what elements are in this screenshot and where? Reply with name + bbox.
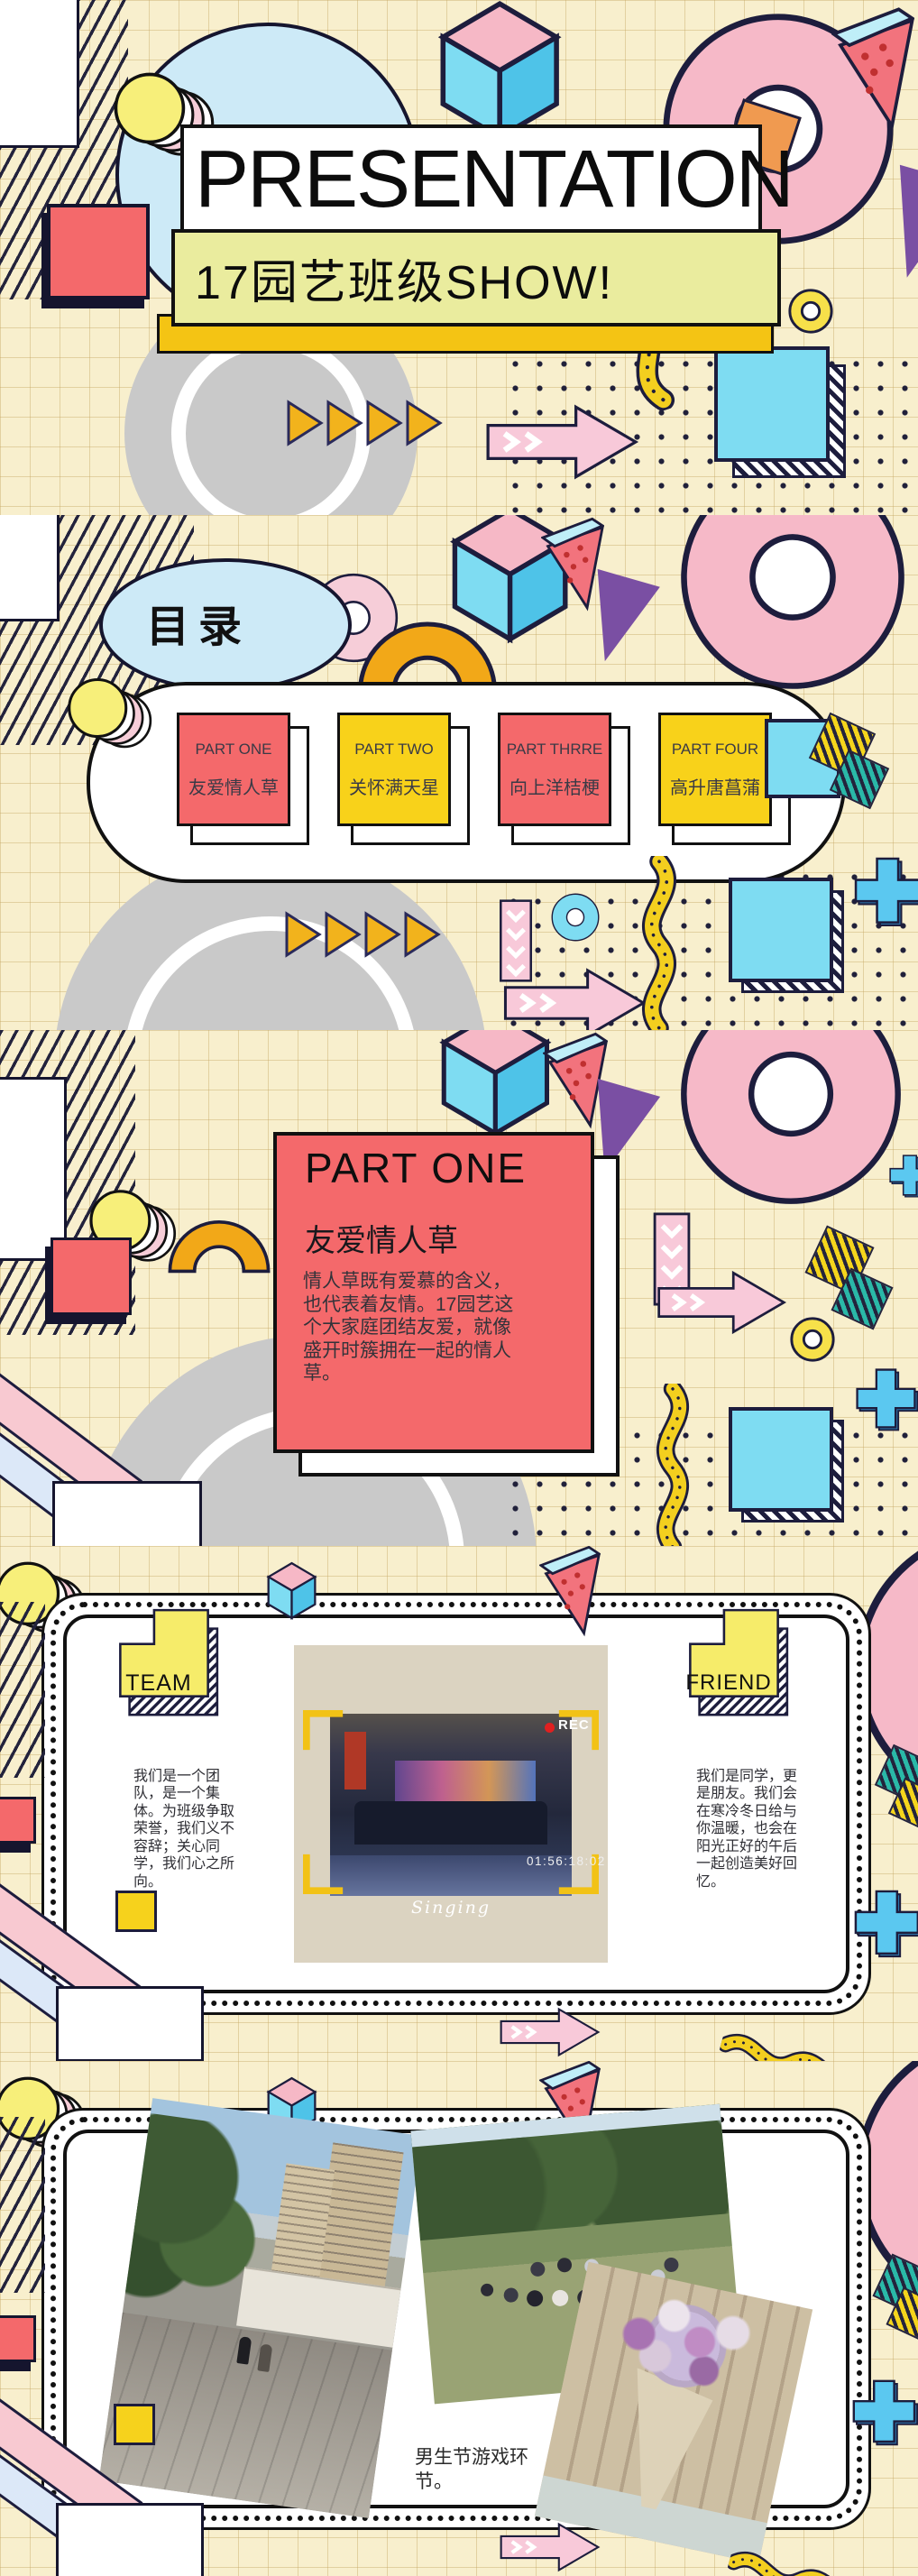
group-photo [330, 1714, 572, 1896]
triangle-arrow-icon [363, 910, 402, 959]
watermelon-shape [831, 0, 914, 135]
team-badge [106, 1604, 222, 1723]
slash-pattern [0, 2117, 45, 2293]
team-paragraph: 我们是一个团队，是一个集体。为班级争取荣誉，我们义不容辞；关心同学，我们心之所向… [133, 1768, 240, 1891]
small-ring-icon [788, 1315, 837, 1364]
triangle-arrow-icon [325, 399, 364, 447]
friend-badge-label: FRIEND [671, 1670, 786, 1696]
viewfinder-bracket-icon [303, 1851, 346, 1894]
small-ring-icon [786, 287, 835, 336]
stacked-circle-icon [61, 670, 156, 765]
cyan-square-shape [729, 878, 833, 982]
triangle-arrow-icon [404, 399, 444, 447]
toc-card-part-one: PART ONE 友爱情人草 [177, 713, 290, 826]
triangle-arrow-icon [285, 399, 325, 447]
plus-shape [851, 1887, 918, 1961]
toc-card-title: 关怀满天星 [349, 773, 439, 799]
plus-shape [853, 1366, 918, 1434]
pink-arrow-icon [498, 2001, 601, 2061]
toc-heading: 目录 [146, 591, 251, 654]
timecode-label: 01:56:18:02 [527, 1854, 606, 1868]
pink-arrow-icon [655, 1266, 788, 1339]
squiggle-shape [646, 1384, 700, 1545]
plus-shape [887, 1153, 918, 1200]
section-part-label: PART ONE [305, 1144, 527, 1192]
plus-shape [851, 854, 918, 930]
slide-cover: PRESENTATION 17园艺班级SHOW! [0, 0, 918, 515]
slide-team-friend: TEAM FRIEND REC 01:56:18:02 Singing 我们是一… [0, 1546, 918, 2061]
rec-dot-icon [545, 1723, 555, 1733]
triangle-arrow-icon [364, 399, 404, 447]
cover-subtitle: 17园艺班级SHOW! [195, 244, 613, 312]
white-corner-rect [56, 1986, 204, 2061]
toc-card-part-label: PART THRRE [507, 741, 602, 759]
rec-label: REC [558, 1717, 590, 1733]
toc-card-part-three: PART THRRE 向上洋桔梗 [498, 713, 611, 826]
cyan-donut-icon [550, 892, 601, 943]
cube-icon [256, 1555, 325, 1624]
photo-crowd-silhouette [354, 1801, 547, 1845]
pink-donut-shape [675, 515, 911, 695]
presentation-preview: PRESENTATION 17园艺班级SHOW! 目录 PART ONE 友爱情… [0, 0, 918, 2576]
slash-pattern [0, 1602, 45, 1778]
squiggle-shape [631, 856, 687, 1030]
toc-card-title: 向上洋桔梗 [509, 773, 600, 799]
pink-donut-shape [675, 1030, 907, 1210]
cover-title: PRESENTATION [195, 133, 793, 226]
photo-stage-backdrop [395, 1761, 535, 1804]
red-square-shape [0, 1797, 36, 1844]
white-corner-rect [56, 2503, 204, 2576]
pink-arrow-icon [498, 2516, 601, 2576]
triangle-arrow-icon [323, 910, 363, 959]
triangle-arrow-icon [283, 910, 323, 959]
watermelon-shape [539, 1546, 601, 1640]
gallery-caption: 男生节游戏环节。 [415, 2445, 536, 2494]
photo-caption: Singing [397, 1898, 505, 1918]
slide-photo-gallery: 男生节游戏环节。 [0, 2061, 918, 2576]
photo-campus-walk [99, 2098, 423, 2518]
cyan-square-shape [729, 1407, 833, 1512]
white-corner-rect [0, 1077, 67, 1261]
pink-arrow-icon [480, 400, 644, 483]
red-square-shape [47, 204, 150, 299]
squiggle-shape [714, 2016, 868, 2061]
friend-paragraph: 我们是同学，更是朋友。我们会在寒冷冬日给与你温暖，也会在阳光正好的午后一起创造美… [696, 1768, 806, 1891]
toc-card-part-label: PART FOUR [672, 741, 758, 759]
yellow-square-shape [114, 2404, 155, 2445]
slide-toc: 目录 PART ONE 友爱情人草 PART TWO 关怀满天星 [0, 515, 918, 1030]
viewfinder-bracket-icon [303, 1710, 346, 1753]
photo-people [480, 2283, 493, 2296]
white-corner-rect [52, 1481, 202, 1545]
squiggle-shape [722, 2534, 877, 2576]
red-square-shape [50, 1237, 132, 1315]
gold-arch-shape [162, 1214, 276, 1274]
friend-badge [676, 1604, 792, 1723]
section-body-text: 情人草既有爱慕的含义，也代表着友情。17园艺这个大家庭团结友爱，就像盛开时簇拥在… [303, 1270, 521, 1385]
cyan-square-shape [714, 346, 830, 462]
cover-title-box: PRESENTATION [180, 124, 762, 235]
yellow-square-shape [115, 1891, 157, 1932]
slide-part-one: PART ONE 友爱情人草 情人草既有爱慕的含义，也代表着友情。17园艺这个大… [0, 1030, 918, 1545]
photo-red-banner [344, 1732, 366, 1790]
triangle-arrow-icon [402, 910, 442, 959]
plus-shape [849, 2377, 918, 2449]
toc-card-part-label: PART ONE [195, 741, 271, 759]
section-title: 友爱情人草 [305, 1216, 458, 1260]
team-badge-label: TEAM [101, 1670, 216, 1697]
cover-subtitle-box: 17园艺班级SHOW! [171, 229, 781, 327]
white-corner-rect [0, 0, 79, 148]
toc-card-part-four: PART FOUR 高升唐菖蒲 [658, 713, 772, 826]
white-corner-rect [0, 515, 60, 621]
toc-card-title: 高升唐菖蒲 [670, 773, 760, 799]
red-square-shape [0, 2315, 36, 2362]
toc-card-title: 友爱情人草 [188, 773, 279, 799]
toc-card-part-two: PART TWO 关怀满天星 [337, 713, 451, 826]
toc-card-part-label: PART TWO [354, 741, 434, 759]
